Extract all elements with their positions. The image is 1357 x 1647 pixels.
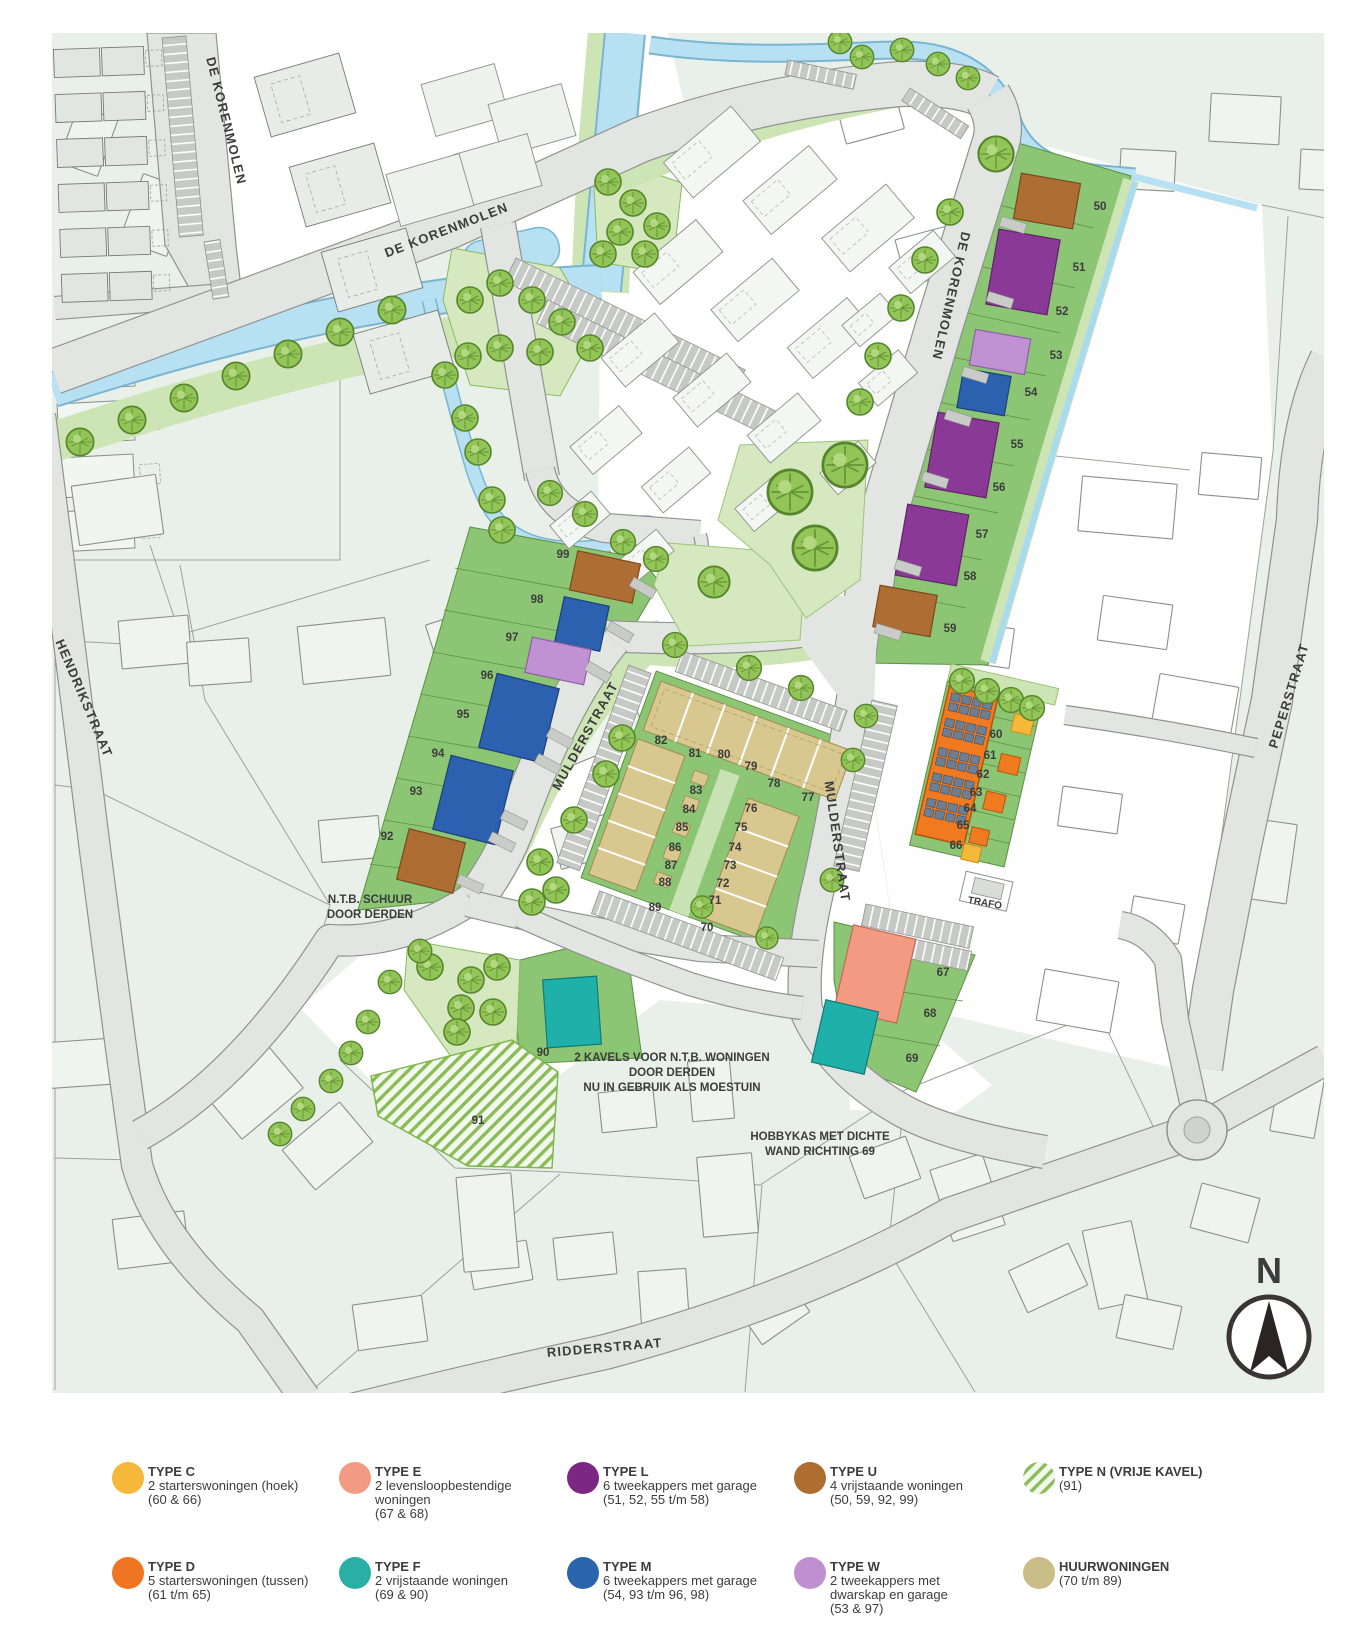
svg-text:95: 95 — [457, 709, 470, 721]
svg-text:TYPE W: TYPE W — [830, 1559, 881, 1574]
svg-text:TYPE M: TYPE M — [603, 1559, 651, 1574]
svg-text:dwarskap en garage: dwarskap en garage — [830, 1587, 948, 1602]
svg-text:98: 98 — [531, 594, 544, 606]
svg-text:2 tweekappers met: 2 tweekappers met — [830, 1573, 940, 1588]
svg-text:(61 t/m 65): (61 t/m 65) — [148, 1587, 211, 1602]
svg-text:97: 97 — [506, 632, 519, 644]
svg-text:67: 67 — [937, 967, 950, 979]
svg-text:TYPE N (VRIJE KAVEL): TYPE N (VRIJE KAVEL) — [1059, 1464, 1203, 1479]
svg-text:92: 92 — [381, 831, 394, 843]
svg-text:78: 78 — [768, 778, 781, 790]
svg-text:58: 58 — [964, 571, 977, 583]
svg-text:TYPE F: TYPE F — [375, 1559, 421, 1574]
svg-text:71: 71 — [709, 895, 722, 907]
svg-text:woningen: woningen — [374, 1492, 431, 1507]
svg-text:83: 83 — [690, 785, 703, 797]
svg-text:HUURWONINGEN: HUURWONINGEN — [1059, 1559, 1169, 1574]
svg-text:62: 62 — [977, 769, 990, 781]
svg-text:79: 79 — [745, 761, 758, 773]
svg-text:(91): (91) — [1059, 1478, 1082, 1493]
svg-text:74: 74 — [729, 842, 742, 854]
svg-text:52: 52 — [1056, 306, 1069, 318]
svg-text:93: 93 — [410, 786, 423, 798]
svg-text:N: N — [1256, 1250, 1282, 1291]
svg-text:59: 59 — [944, 623, 957, 635]
svg-text:82: 82 — [655, 735, 668, 747]
svg-text:6 tweekappers met garage: 6 tweekappers met garage — [603, 1478, 757, 1493]
svg-text:50: 50 — [1094, 201, 1107, 213]
svg-text:DOOR DERDEN: DOOR DERDEN — [327, 909, 413, 921]
svg-text:(67 & 68): (67 & 68) — [375, 1506, 428, 1521]
svg-text:HOBBYKAS MET DICHTE: HOBBYKAS MET DICHTE — [750, 1131, 890, 1143]
svg-text:56: 56 — [993, 482, 1006, 494]
svg-text:TYPE C: TYPE C — [148, 1464, 196, 1479]
svg-text:(53 & 97): (53 & 97) — [830, 1601, 883, 1616]
svg-text:61: 61 — [984, 750, 997, 762]
svg-text:(60 & 66): (60 & 66) — [148, 1492, 201, 1507]
svg-text:86: 86 — [669, 842, 682, 854]
svg-text:TYPE D: TYPE D — [148, 1559, 195, 1574]
svg-text:51: 51 — [1073, 262, 1086, 274]
svg-text:72: 72 — [717, 878, 730, 890]
svg-text:2 levensloopbestendige: 2 levensloopbestendige — [375, 1478, 512, 1493]
svg-text:63: 63 — [970, 787, 983, 799]
svg-text:57: 57 — [976, 529, 989, 541]
svg-text:N.T.B. SCHUUR: N.T.B. SCHUUR — [328, 894, 413, 906]
svg-text:54: 54 — [1025, 387, 1038, 399]
svg-text:69: 69 — [906, 1053, 919, 1065]
svg-text:WAND RICHTING 69: WAND RICHTING 69 — [765, 1146, 875, 1158]
svg-text:84: 84 — [683, 804, 696, 816]
svg-text:64: 64 — [964, 803, 977, 815]
svg-text:85: 85 — [676, 822, 689, 834]
svg-text:81: 81 — [689, 748, 702, 760]
svg-text:80: 80 — [718, 749, 731, 761]
svg-text:65: 65 — [957, 820, 970, 832]
svg-text:76: 76 — [745, 803, 758, 815]
svg-text:96: 96 — [481, 670, 494, 682]
svg-text:89: 89 — [649, 902, 662, 914]
svg-text:(51, 52, 55 t/m 58): (51, 52, 55 t/m 58) — [603, 1492, 709, 1507]
svg-text:88: 88 — [659, 877, 672, 889]
svg-text:2 vrijstaande woningen: 2 vrijstaande woningen — [375, 1573, 508, 1588]
svg-text:70: 70 — [701, 922, 714, 934]
svg-text:2 starterswoningen (hoek): 2 starterswoningen (hoek) — [148, 1478, 298, 1493]
svg-text:6 tweekappers met garage: 6 tweekappers met garage — [603, 1573, 757, 1588]
svg-text:53: 53 — [1050, 350, 1063, 362]
svg-text:NU IN GEBRUIK ALS MOESTUIN: NU IN GEBRUIK ALS MOESTUIN — [583, 1082, 760, 1094]
svg-text:(50, 59, 92, 99): (50, 59, 92, 99) — [830, 1492, 918, 1507]
svg-text:(54, 93 t/m 96, 98): (54, 93 t/m 96, 98) — [603, 1587, 709, 1602]
svg-text:4 vrijstaande woningen: 4 vrijstaande woningen — [830, 1478, 963, 1493]
svg-text:91: 91 — [472, 1115, 485, 1127]
svg-text:90: 90 — [537, 1047, 550, 1059]
svg-text:73: 73 — [724, 860, 737, 872]
svg-text:68: 68 — [924, 1008, 937, 1020]
svg-text:66: 66 — [950, 840, 963, 852]
svg-text:60: 60 — [990, 729, 1003, 741]
svg-text:5 starterswoningen (tussen): 5 starterswoningen (tussen) — [148, 1573, 308, 1588]
svg-text:DOOR DERDEN: DOOR DERDEN — [629, 1067, 715, 1079]
svg-text:TYPE L: TYPE L — [603, 1464, 649, 1479]
svg-text:(69 & 90): (69 & 90) — [375, 1587, 428, 1602]
svg-text:75: 75 — [735, 822, 748, 834]
svg-text:94: 94 — [432, 748, 445, 760]
svg-text:TYPE E: TYPE E — [375, 1464, 422, 1479]
svg-text:2 KAVELS VOOR N.T.B. WONINGEN: 2 KAVELS VOOR N.T.B. WONINGEN — [574, 1052, 769, 1064]
svg-text:(70 t/m 89): (70 t/m 89) — [1059, 1573, 1122, 1588]
svg-text:99: 99 — [557, 549, 570, 561]
svg-text:55: 55 — [1011, 439, 1024, 451]
svg-text:TYPE U: TYPE U — [830, 1464, 877, 1479]
svg-text:77: 77 — [802, 792, 815, 804]
svg-text:87: 87 — [665, 860, 678, 872]
